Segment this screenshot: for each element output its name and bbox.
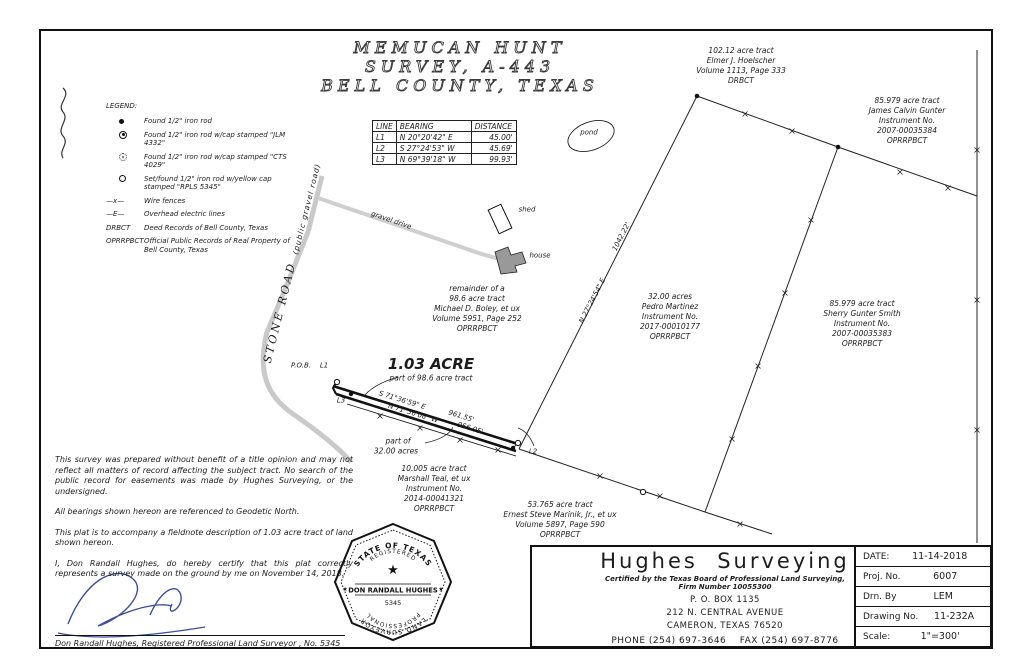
survey-sheet: MEMUCAN HUNT SURVEY, A-443 BELL COUNTY, … bbox=[0, 0, 1024, 662]
plat-title-line1: MEMUCAN HUNT bbox=[354, 38, 567, 57]
strip-fence-line bbox=[347, 404, 516, 456]
seal-star-icon: ★ bbox=[387, 563, 399, 578]
col-distance: DISTANCE bbox=[471, 121, 516, 132]
info-row-drawing-no: Drawing No. 11-232A bbox=[856, 607, 990, 627]
pond-label: pond bbox=[580, 128, 598, 138]
set-iron-rod-icon bbox=[119, 175, 126, 182]
legend-item: Found 1/2" iron rod bbox=[106, 117, 306, 126]
note-bearings: All bearings shown hereon are referenced… bbox=[55, 507, 353, 518]
part-of-32-label-1: part of bbox=[386, 436, 411, 446]
l2-label: L2 bbox=[529, 447, 537, 457]
line-id: L1 bbox=[373, 132, 397, 143]
house-shape bbox=[495, 247, 526, 274]
found-iron-rod-cap-icon bbox=[119, 153, 127, 161]
line-table-row: L2 S 27°24'53" W 45.69' bbox=[373, 143, 517, 154]
firm-city: CAMERON, TEXAS 76520 bbox=[598, 620, 852, 633]
title-block: Hughes Surveying Certified by the Texas … bbox=[530, 545, 992, 648]
legend-item-label: Wire fences bbox=[144, 197, 292, 206]
legend: LEGEND: Found 1/2" iron rod Found 1/2" i… bbox=[106, 102, 306, 259]
legend-item-label: Deed Records of Bell County, Texas bbox=[144, 224, 292, 233]
seal-number-text: 5345 bbox=[385, 599, 402, 607]
found-iron-rod-icon bbox=[511, 446, 515, 450]
legend-heading: LEGEND: bbox=[106, 102, 306, 110]
l1-label: L1 bbox=[320, 361, 328, 371]
line-distance: 99.93' bbox=[471, 154, 516, 165]
tract-label-teal: 10.005 acre tract Marshall Teal, et ux I… bbox=[398, 464, 471, 514]
legend-item-label: Found 1/2" iron rod bbox=[144, 117, 292, 126]
survey-notes: This survey was prepared without benefit… bbox=[55, 455, 353, 590]
line-bearing: N 69°39'18" W bbox=[396, 154, 471, 165]
pob-label: P.O.B. bbox=[291, 361, 311, 371]
tract-label-gunter-sherry: 85.979 acre tract Sherry Gunter Smith In… bbox=[823, 299, 900, 349]
l3-label: L3 bbox=[337, 396, 345, 406]
col-bearing: BEARING bbox=[396, 121, 471, 132]
legend-item-label: Found 1/2" iron rod w/cap stamped "JLM 4… bbox=[144, 131, 292, 148]
legend-item: —E— Overhead electric lines bbox=[106, 210, 306, 219]
plat-title-line2: SURVEY, A-443 bbox=[365, 57, 555, 76]
info-row-project: Proj. No. 6007 bbox=[856, 567, 990, 587]
line-table-row: L3 N 69°39'18" W 99.93' bbox=[373, 154, 517, 165]
legend-item-label: Overhead electric lines bbox=[144, 210, 292, 219]
found-iron-rod-icon bbox=[836, 145, 841, 150]
note-title-opinion: This survey was prepared without benefit… bbox=[55, 455, 353, 497]
set-iron-rod-icon bbox=[334, 379, 339, 384]
legend-item-label: Found 1/2" iron rod w/cap stamped "CTS 4… bbox=[144, 153, 292, 170]
line-distance: 45.69' bbox=[471, 143, 516, 154]
surveyor-seal: STATE OF TEXAS REGISTERED ★ DON RANDALL … bbox=[326, 518, 460, 646]
electric-line-symbol: —E— bbox=[106, 210, 144, 219]
part-of-32-label-2: 32.00 acres bbox=[374, 446, 418, 456]
tract-label-martinez: 32.00 acres Pedro Martinez Instrument No… bbox=[640, 292, 700, 342]
margin-squiggle bbox=[61, 88, 66, 158]
legend-item-label: Set/found 1/2" iron rod w/yellow cap sta… bbox=[144, 175, 292, 192]
line-id: L3 bbox=[373, 154, 397, 165]
legend-item: OPRRPBCT Official Public Records of Real… bbox=[106, 237, 306, 254]
firm-street: 212 N. CENTRAL AVENUE bbox=[598, 607, 852, 620]
set-iron-rod-icon bbox=[640, 489, 645, 494]
drbct-abbrev: DRBCT bbox=[106, 224, 144, 233]
shed-label: shed bbox=[519, 205, 536, 215]
shed-shape bbox=[488, 204, 512, 233]
tract-label-boley: remainder of a 98.6 acre tract Michael D… bbox=[432, 284, 521, 334]
line-distance: 45.00' bbox=[471, 132, 516, 143]
surveyor-signature-stroke bbox=[150, 589, 181, 615]
seal-star-icon: ★ bbox=[438, 586, 443, 593]
seal-star-icon: ★ bbox=[342, 586, 347, 593]
found-iron-rod-icon bbox=[695, 94, 700, 99]
firm-address: P. O. BOX 1135 212 N. CENTRAL AVENUE CAM… bbox=[598, 594, 852, 633]
subject-part-label: part of 98.6 acre tract bbox=[390, 373, 473, 383]
firm-phone-fax: PHONE (254) 697-3646 FAX (254) 697-8776 bbox=[598, 636, 852, 646]
line-bearing: S 27°24'53" W bbox=[396, 143, 471, 154]
line-table: LINE BEARING DISTANCE L1 N 20°20'42" E 4… bbox=[372, 120, 517, 165]
legend-item: Found 1/2" iron rod w/cap stamped "CTS 4… bbox=[106, 153, 306, 170]
subject-area-label: 1.03 ACRE bbox=[388, 355, 474, 373]
ne-boundary-line bbox=[519, 96, 697, 449]
drawing-info-table: DATE: 11-14-2018 Proj. No. 6007 Drn. By … bbox=[854, 547, 990, 646]
firm-certification: Certified by the Texas Board of Professi… bbox=[598, 575, 852, 591]
info-row-scale: Scale: 1"=300' bbox=[856, 627, 990, 646]
wire-fence-symbol: —x— bbox=[106, 197, 144, 206]
line-table-row: L1 N 20°20'42" E 45.00' bbox=[373, 132, 517, 143]
firm-pane: Hughes Surveying Certified by the Texas … bbox=[532, 547, 854, 646]
legend-item: —x— Wire fences bbox=[106, 197, 306, 206]
col-line: LINE bbox=[373, 121, 397, 132]
info-row-date: DATE: 11-14-2018 bbox=[856, 547, 990, 567]
tract-label-hoelscher: 102.12 acre tract Elmer J. Hoelscher Vol… bbox=[696, 46, 785, 86]
note-fieldnote: This plat is to accompany a fieldnote de… bbox=[55, 528, 353, 549]
set-iron-rod-icon bbox=[515, 440, 520, 445]
found-iron-rod-cap-icon bbox=[119, 131, 127, 139]
surveyor-name-line: Don Randall Hughes, Registered Professio… bbox=[55, 639, 340, 648]
martinez-east-line bbox=[705, 147, 838, 512]
plat-title-line3: BELL COUNTY, TEXAS bbox=[321, 76, 599, 95]
line-id: L2 bbox=[373, 143, 397, 154]
oprrpbct-abbrev: OPRRPBCT bbox=[106, 237, 144, 246]
house-label: house bbox=[529, 251, 550, 261]
firm-name: Hughes Surveying bbox=[598, 549, 852, 573]
legend-item: Found 1/2" iron rod w/cap stamped "JLM 4… bbox=[106, 131, 306, 148]
tract-label-gunter-james: 85.979 acre tract James Calvin Gunter In… bbox=[869, 96, 946, 146]
line-table-header: LINE BEARING DISTANCE bbox=[373, 121, 517, 132]
line-bearing: N 20°20'42" E bbox=[396, 132, 471, 143]
legend-item: Set/found 1/2" iron rod w/yellow cap sta… bbox=[106, 175, 306, 192]
tract-label-marinik: 53.765 acre tract Ernest Steve Marinik, … bbox=[503, 500, 616, 540]
found-iron-rod-icon bbox=[349, 392, 353, 396]
legend-item: DRBCT Deed Records of Bell County, Texas bbox=[106, 224, 306, 233]
found-iron-rod-icon bbox=[119, 119, 124, 124]
legend-item-label: Official Public Records of Real Property… bbox=[144, 237, 292, 254]
note-certification: I, Don Randall Hughes, do hereby certify… bbox=[55, 559, 353, 580]
info-row-drawn-by: Drn. By LEM bbox=[856, 587, 990, 607]
firm-po-box: P. O. BOX 1135 bbox=[598, 594, 852, 607]
seal-name-text: DON RANDALL HUGHES bbox=[348, 587, 438, 595]
